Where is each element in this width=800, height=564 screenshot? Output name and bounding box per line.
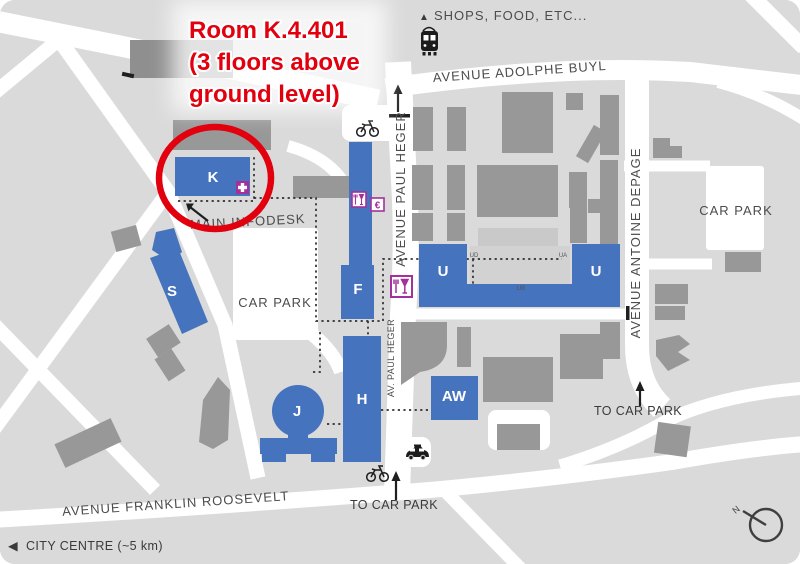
map-canvas: K S F U U H J AW UD UA UB SHOPS, FOOD, E… xyxy=(0,0,800,564)
to-car-park-south-label: TO CAR PARK xyxy=(350,498,438,512)
building-u-west-label: U xyxy=(438,263,449,280)
shops-food-label: SHOPS, FOOD, ETC... xyxy=(434,8,587,23)
car-park-center-label: CAR PARK xyxy=(238,295,312,310)
restaurant-icon-small xyxy=(352,192,366,207)
building-u-east-label: U xyxy=(591,263,602,280)
infodesk-cross-icon xyxy=(236,181,249,194)
annotation-line2: (3 floors above xyxy=(189,49,360,76)
euro-glyph: € xyxy=(375,201,381,212)
wing-ud-label: UD xyxy=(470,253,479,259)
street-paul-heger: AVENUE PAUL HEGER xyxy=(393,111,408,266)
city-centre-label: CITY CENTRE (~5 km) xyxy=(26,539,163,553)
building-aw-label: AW xyxy=(442,388,467,405)
car-park-right-label: CAR PARK xyxy=(699,203,773,218)
wing-ua-label: UA xyxy=(559,253,567,259)
building-j-label: J xyxy=(293,403,301,420)
building-h-label: H xyxy=(357,391,368,408)
restaurant-icon-large xyxy=(391,276,412,297)
annotation-line1: Room K.4.401 xyxy=(189,17,348,44)
building-s-label: S xyxy=(167,283,177,300)
campus-map: K S F U U H J AW UD UA UB SHOPS, FOOD, E… xyxy=(0,0,800,564)
city-centre-arrow-icon: ◀ xyxy=(8,539,18,553)
euro-icon: € xyxy=(371,198,384,212)
to-car-park-east-label: TO CAR PARK xyxy=(594,404,682,418)
building-k-label: K xyxy=(208,169,219,186)
street-paul-heger-short: AV. PAUL HEGER xyxy=(386,319,396,397)
annotation-line3: ground level) xyxy=(189,81,340,108)
wing-ub-label: UB xyxy=(517,286,525,292)
building-f-label: F xyxy=(353,281,362,298)
car-park-center-area xyxy=(233,228,318,340)
street-antoine-depage: AVENUE ANTOINE DEPAGE xyxy=(628,148,643,339)
up-triangle-icon: ▲ xyxy=(419,12,429,23)
